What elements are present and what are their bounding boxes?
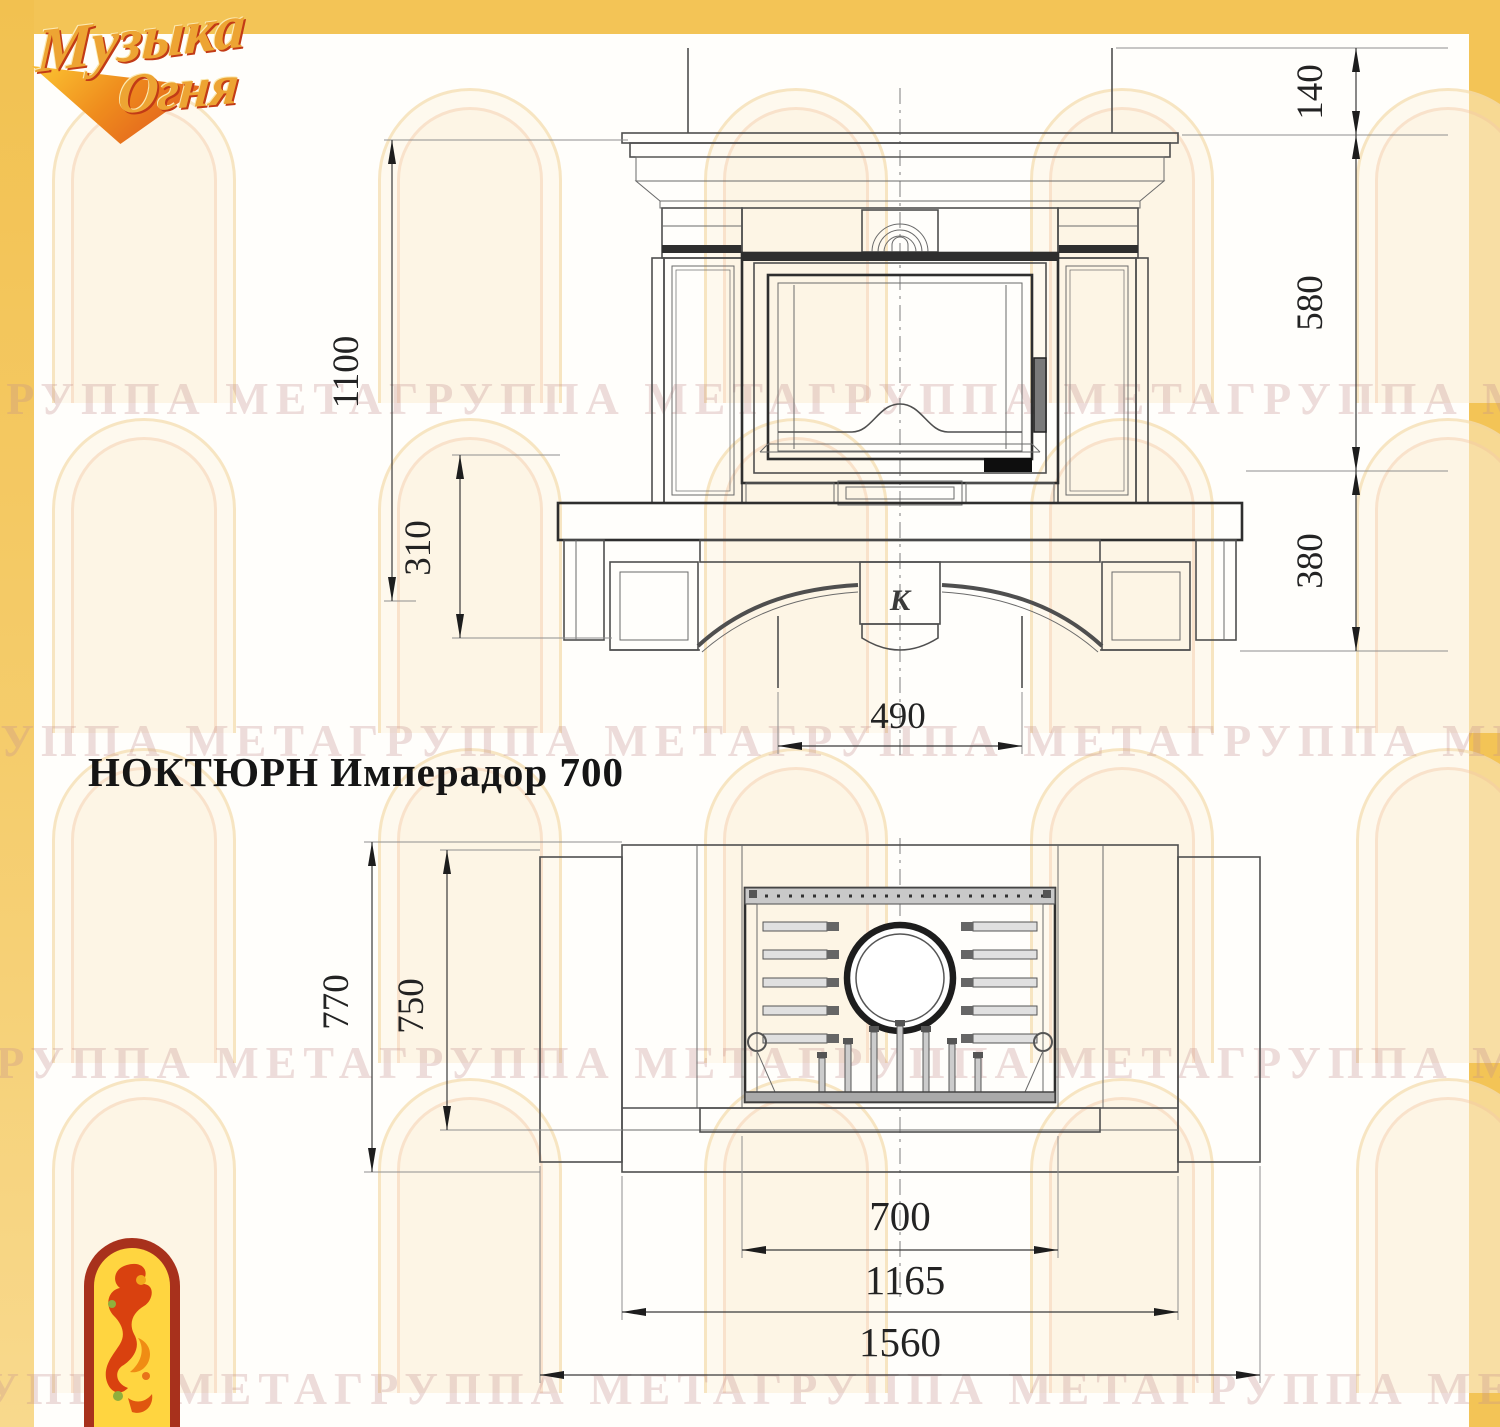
right-leg-panel [1058, 258, 1148, 503]
dim-750: 750 [391, 978, 432, 1034]
firebird-icon [94, 1248, 170, 1427]
dim-1560: 1560 [859, 1319, 941, 1365]
dim-140: 140 [1290, 64, 1331, 120]
left-leg-panel [652, 258, 742, 503]
plan-right-bench [1178, 857, 1260, 1162]
bottom-pins [817, 1020, 983, 1092]
left-fins [763, 922, 839, 1043]
firebird-arch-emblem [84, 1238, 180, 1427]
dim-580: 580 [1290, 275, 1331, 331]
dim-310: 310 [398, 520, 439, 576]
fireplace-technical-drawing: К 140 580 380 1100 310 [0, 0, 1500, 1427]
plan-dimensions-left: 770 750 [316, 842, 622, 1172]
dim-700: 700 [869, 1193, 931, 1239]
dim-380: 380 [1290, 533, 1331, 589]
plan-firebox-insert [745, 888, 1055, 1102]
firebird-arch-inner [94, 1248, 170, 1427]
right-fins [961, 922, 1037, 1043]
plan-view: 770 750 700 1165 1560 [316, 838, 1260, 1383]
model-title: НОКТЮРН Имперадор 700 [88, 748, 624, 796]
plan-dimensions-bottom: 700 1165 1560 [540, 1136, 1260, 1383]
plan-left-bench [540, 857, 622, 1162]
front-dimensions-left: 1100 310 [326, 140, 628, 638]
front-dimensions-right: 140 580 380 [1116, 48, 1448, 651]
logo-word-ognya: Огня [115, 52, 241, 127]
dim-1100: 1100 [326, 336, 367, 409]
dim-770: 770 [316, 974, 357, 1030]
flue-collar [847, 925, 953, 1031]
dim-1165: 1165 [865, 1257, 945, 1303]
dim-490: 490 [870, 696, 926, 737]
door-latch [984, 458, 1032, 472]
base-pedestal: К [564, 540, 1236, 688]
front-elevation-view: К 140 580 380 1100 310 [326, 48, 1448, 760]
pedestal-emblem: К [889, 584, 912, 617]
door-handle [1034, 358, 1046, 432]
catalog-page: ГРУППА МЕТАГРУППА МЕТАГРУППА МЕТАГРУППА … [0, 0, 1500, 1427]
brand-logo: Музыка Огня [10, 2, 320, 152]
